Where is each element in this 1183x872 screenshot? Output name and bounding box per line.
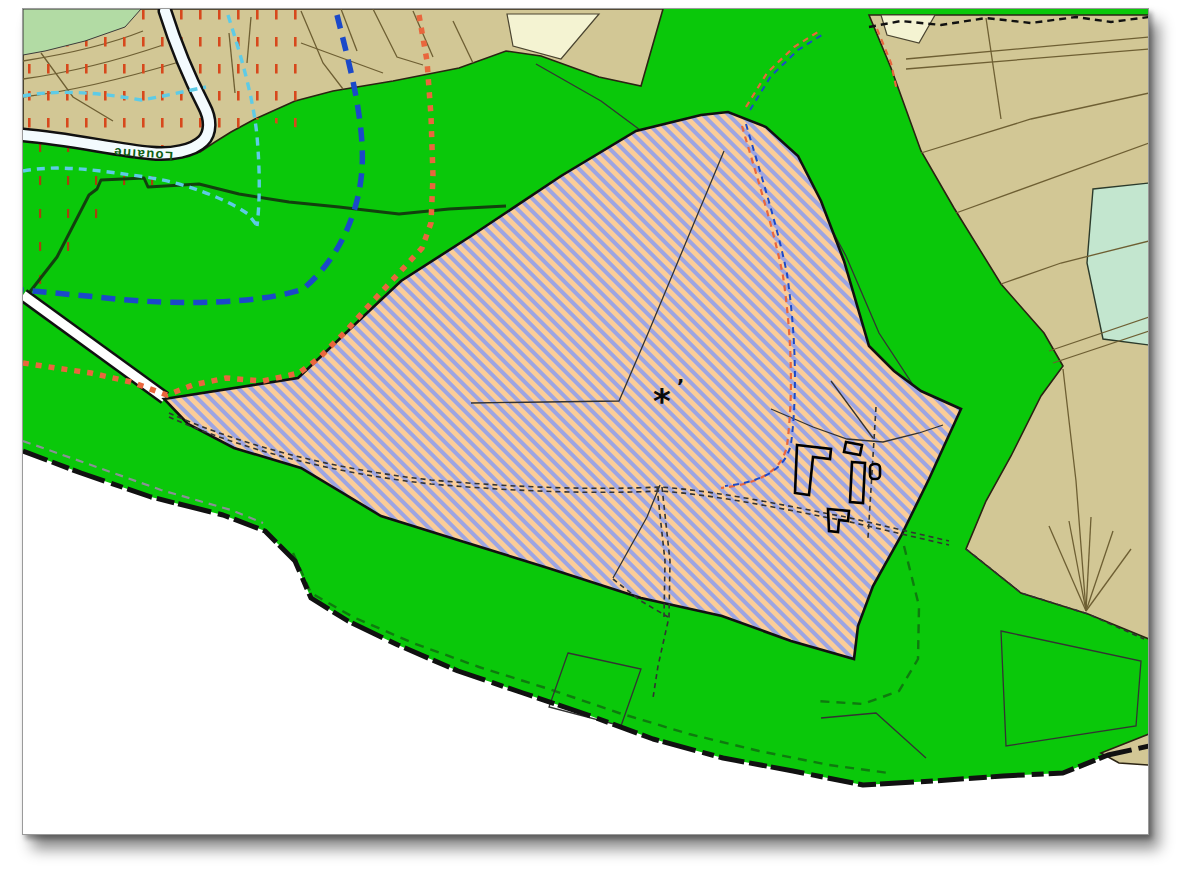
map-canvas: Louaine	[23, 9, 1148, 834]
asterisk-marker: *	[653, 381, 671, 421]
map-page: Louaine	[22, 8, 1149, 835]
tick-marker: ’	[677, 375, 684, 397]
desktop-background: Louaine	[0, 0, 1183, 872]
